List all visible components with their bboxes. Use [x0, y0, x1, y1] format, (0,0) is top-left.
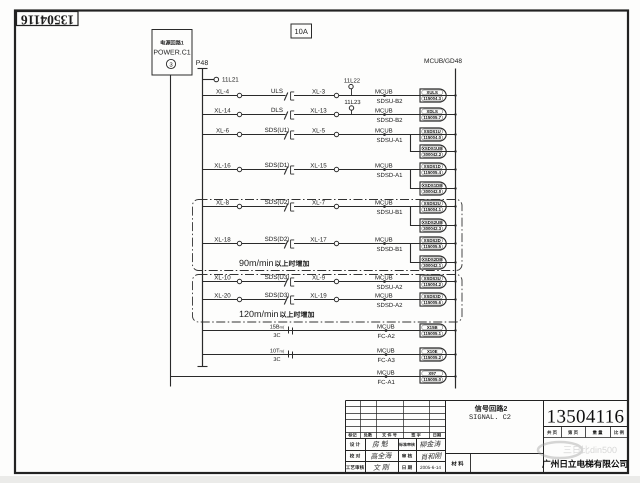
svg-text:11L21: 11L21: [222, 77, 239, 84]
svg-text:MCUB: MCUB: [377, 324, 395, 331]
svg-text:115005.5: 115005.5: [423, 244, 441, 249]
svg-text:115005.7: 115005.7: [423, 115, 441, 120]
svg-text:处数: 处数: [363, 433, 373, 438]
svg-text:3C: 3C: [273, 357, 280, 363]
svg-text:MCUB/GD48: MCUB/GD48: [424, 58, 462, 65]
svg-text:共 页: 共 页: [547, 430, 558, 435]
svg-text:MCUB: MCUB: [375, 275, 393, 282]
svg-text:设 计: 设 计: [350, 442, 361, 447]
svg-text:X15B: X15B: [427, 325, 438, 330]
svg-text:MCUB: MCUB: [375, 108, 393, 115]
svg-text:P48: P48: [196, 60, 209, 67]
svg-text:XSDS1UB: XSDS1UB: [422, 146, 442, 151]
svg-text:FC-A1: FC-A1: [378, 379, 396, 386]
svg-text:XDLS: XDLS: [426, 109, 438, 114]
svg-text:工艺审核: 工艺审核: [346, 464, 365, 470]
svg-text:115005.1: 115005.1: [423, 331, 441, 336]
svg-text:SDS(U2): SDS(U2): [265, 199, 290, 206]
svg-text:SDS(U1): SDS(U1): [265, 127, 290, 134]
svg-text:XSDS1DB: XSDS1DB: [422, 183, 442, 188]
svg-text:MCUB: MCUB: [377, 348, 395, 355]
svg-text:MCUB: MCUB: [375, 237, 393, 244]
svg-text:13504116: 13504116: [547, 407, 625, 428]
svg-text:XL-19: XL-19: [310, 293, 327, 300]
svg-text:MCUB: MCUB: [377, 370, 395, 377]
svg-text:广州日立电梯有限公司: 广州日立电梯有限公司: [542, 459, 628, 469]
svg-text:MCUB: MCUB: [375, 163, 393, 170]
svg-text:115005.2: 115005.2: [423, 355, 441, 360]
svg-text:300042.1: 300042.1: [423, 263, 442, 268]
svg-text:XL-8: XL-8: [216, 200, 230, 207]
svg-text:SIGNAL. C2: SIGNAL. C2: [469, 414, 511, 422]
svg-text:11L22: 11L22: [344, 78, 361, 85]
svg-text:11L23: 11L23: [344, 99, 361, 106]
svg-text:300042.2: 300042.2: [423, 152, 442, 157]
svg-text:高全海: 高全海: [370, 452, 392, 461]
svg-text:日期: 日期: [433, 433, 441, 438]
svg-text:X97: X97: [428, 371, 436, 376]
svg-text:SDSU-A1: SDSU-A1: [377, 137, 404, 144]
svg-text:DLS: DLS: [271, 107, 283, 114]
svg-text:SDSD-A2: SDSD-A2: [377, 302, 404, 309]
svg-text:10A: 10A: [295, 27, 308, 36]
svg-text:XSDS1D: XSDS1D: [424, 164, 441, 169]
svg-text:115004.1: 115004.1: [423, 207, 441, 212]
svg-text:SDSU-B2: SDSU-B2: [377, 98, 404, 105]
svg-text:签 字: 签 字: [410, 433, 421, 438]
svg-text:文 刚: 文 刚: [373, 463, 390, 472]
svg-text:FC-A2: FC-A2: [378, 333, 396, 340]
svg-text:柳金涛: 柳金涛: [419, 440, 441, 449]
svg-text:XL-9: XL-9: [312, 275, 326, 282]
svg-text:3C: 3C: [273, 333, 280, 339]
svg-text:FC-A3: FC-A3: [378, 357, 396, 364]
svg-text:XSDS2UB: XSDS2UB: [422, 220, 442, 225]
svg-text:SDS(D2): SDS(D2): [265, 236, 290, 243]
svg-text:XSDS2D: XSDS2D: [424, 238, 441, 243]
svg-text:XL-10: XL-10: [214, 275, 231, 282]
svg-text:115004.2: 115004.2: [423, 282, 441, 287]
svg-text:XL-3: XL-3: [312, 89, 326, 96]
svg-text:XSDS1U: XSDS1U: [424, 129, 441, 134]
svg-text:2005-6-14: 2005-6-14: [420, 465, 441, 470]
svg-text:房 魁: 房 魁: [372, 440, 389, 449]
svg-text:SDSU-B1: SDSU-B1: [377, 209, 404, 216]
svg-text:XL-18: XL-18: [214, 237, 231, 244]
svg-text:XL-14: XL-14: [214, 108, 231, 115]
svg-text:SDSD-B1: SDSD-B1: [377, 246, 404, 253]
svg-text:SDSD-B2: SDSD-B2: [377, 117, 404, 124]
svg-text:审 核: 审 核: [402, 453, 413, 459]
svg-text:XSDS3U: XSDS3U: [424, 276, 441, 281]
svg-text:XSDS2U: XSDS2U: [424, 201, 441, 206]
svg-text:XL-16: XL-16: [214, 163, 231, 170]
svg-text:三日比din500: 三日比din500: [563, 445, 617, 455]
svg-text:115004.0: 115004.0: [423, 135, 441, 140]
svg-text:标准审核: 标准审核: [398, 442, 415, 447]
svg-text:XL-4: XL-4: [216, 89, 230, 96]
svg-text:SDSD-A1: SDSD-A1: [377, 172, 404, 179]
svg-text:MCUB: MCUB: [375, 128, 393, 135]
svg-text:115005.0: 115005.0: [423, 377, 441, 382]
svg-text:XSDS2DB: XSDS2DB: [422, 257, 442, 262]
svg-text:XL-7: XL-7: [312, 200, 326, 207]
svg-text:13504116: 13504116: [21, 12, 75, 27]
svg-text:115004.3: 115004.3: [423, 96, 441, 101]
svg-text:XL-15: XL-15: [310, 163, 327, 170]
svg-text:MCUB: MCUB: [375, 293, 393, 300]
svg-text:300042.0: 300042.0: [423, 189, 442, 194]
svg-text:日 期: 日 期: [402, 465, 413, 470]
svg-text:SDS(D1): SDS(D1): [265, 162, 290, 169]
svg-text:115005.4: 115005.4: [423, 170, 441, 175]
svg-text:SDS(U3): SDS(U3): [265, 274, 290, 281]
svg-text:SDSU-A2: SDSU-A2: [377, 284, 404, 291]
svg-text:SDS(D3): SDS(D3): [265, 292, 290, 299]
svg-text:MCUB: MCUB: [375, 89, 393, 96]
svg-text:信号回路2: 信号回路2: [475, 404, 508, 413]
svg-text:校 对: 校 对: [350, 453, 361, 459]
svg-text:300042.3: 300042.3: [423, 226, 442, 231]
svg-text:第 页: 第 页: [568, 430, 579, 435]
svg-text:XL-6: XL-6: [216, 128, 230, 135]
svg-text:X10E: X10E: [427, 349, 438, 354]
svg-text:MCUB: MCUB: [375, 200, 393, 207]
svg-text:XL-20: XL-20: [214, 293, 231, 300]
svg-text:XL-17: XL-17: [310, 237, 327, 244]
svg-text:XL-5: XL-5: [312, 128, 326, 135]
svg-text:重 量: 重 量: [592, 430, 603, 435]
svg-text:电源回路1: 电源回路1: [160, 40, 184, 47]
svg-text:材 料: 材 料: [450, 461, 464, 468]
svg-text:标记: 标记: [347, 433, 357, 438]
svg-text:XULS: XULS: [426, 90, 438, 95]
svg-text:XSDS3D: XSDS3D: [424, 294, 441, 299]
svg-text:比 例: 比 例: [614, 430, 625, 435]
svg-text:115005.6: 115005.6: [423, 300, 441, 305]
svg-text:ULS: ULS: [271, 88, 283, 95]
svg-text:POWER.C1: POWER.C1: [153, 50, 190, 57]
svg-text:文 件 号: 文 件 号: [382, 433, 397, 438]
svg-text:XL-13: XL-13: [310, 108, 327, 115]
